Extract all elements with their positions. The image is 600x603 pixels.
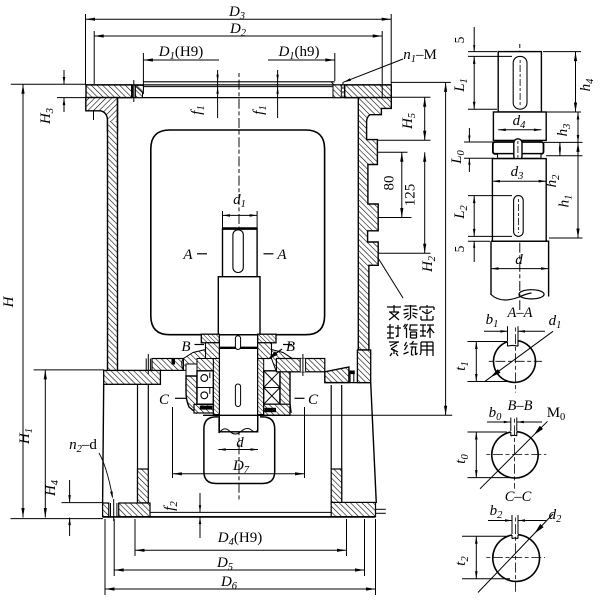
svg-text:C: C xyxy=(159,392,170,408)
svg-text:D4(H9): D4(H9) xyxy=(217,530,262,548)
svg-text:A: A xyxy=(276,247,287,263)
svg-text:n2–d: n2–d xyxy=(69,437,97,455)
svg-text:D1(H9): D1(H9) xyxy=(158,44,203,62)
svg-text:5: 5 xyxy=(452,245,467,252)
svg-text:B: B xyxy=(286,339,295,355)
svg-text:5: 5 xyxy=(452,36,467,43)
svg-text:C: C xyxy=(308,392,319,408)
svg-text:B–B: B–B xyxy=(508,398,533,414)
svg-text:d: d xyxy=(515,252,523,268)
svg-text:D1(h9): D1(h9) xyxy=(277,44,319,62)
svg-text:125: 125 xyxy=(403,184,419,207)
svg-text:A: A xyxy=(182,247,193,263)
svg-text:n1–M: n1–M xyxy=(403,47,437,65)
svg-text:B: B xyxy=(181,339,190,355)
svg-text:A–A: A–A xyxy=(507,305,533,321)
svg-text:80: 80 xyxy=(382,176,398,191)
svg-text:d: d xyxy=(236,435,244,451)
svg-text:C–C: C–C xyxy=(505,489,532,505)
svg-text:H: H xyxy=(1,295,17,308)
